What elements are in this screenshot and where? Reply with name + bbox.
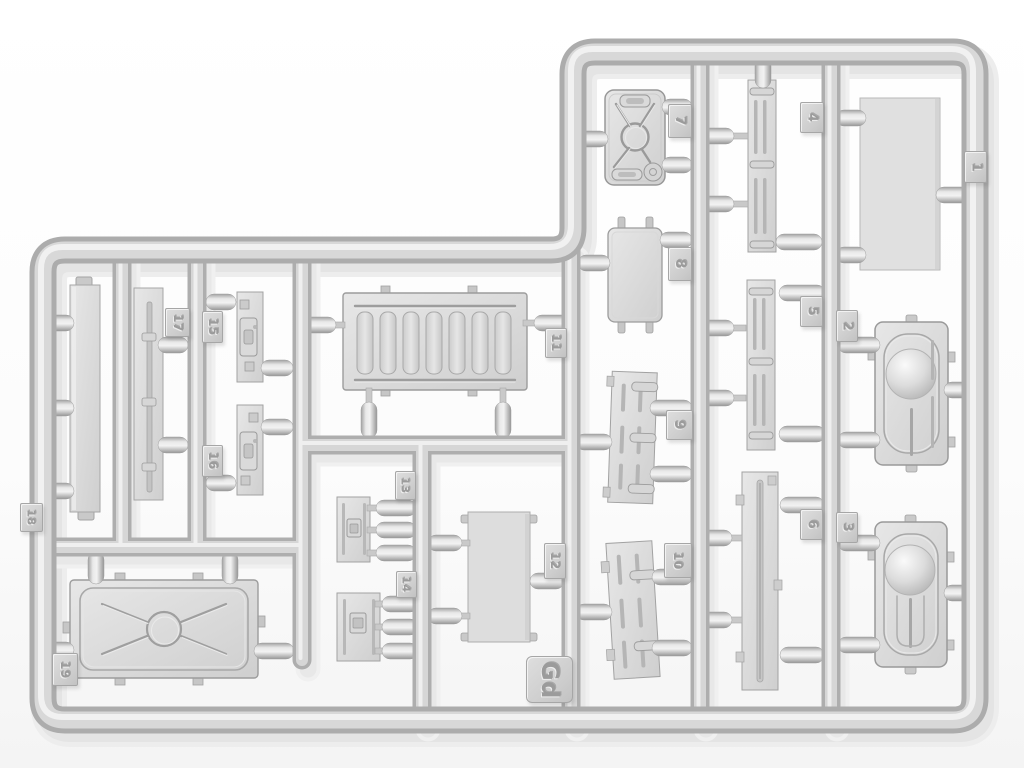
- part-8-box: [608, 217, 662, 333]
- part-tag-1: 1: [964, 151, 987, 183]
- part-tag-14: 14: [396, 571, 417, 598]
- part-tag-4: 4: [800, 102, 824, 133]
- part-tag-5-label: 5: [804, 307, 819, 317]
- part-tag-5: 5: [800, 296, 823, 327]
- part-19-hatch-panel: [63, 573, 265, 685]
- part-13-hatch-plate: [337, 497, 370, 562]
- part-7-jerry-can: [605, 90, 665, 185]
- part-tag-14-label: 14: [400, 576, 413, 592]
- part-tag-17-label: 17: [170, 314, 184, 332]
- part-tag-1-label: 1: [968, 162, 983, 172]
- part-1-flat-sheet: [860, 98, 940, 270]
- part-tag-3: 3: [836, 512, 858, 543]
- part-17-plank: [134, 288, 163, 500]
- part-15-latch-plate: [237, 292, 263, 382]
- part-2-lamp-box: [868, 315, 955, 472]
- part-6-grooved-plank: [736, 472, 782, 690]
- part-tag-9-label: 9: [672, 420, 688, 430]
- part-16-latch-plate: [237, 405, 263, 495]
- part-tag-18-label: 18: [25, 509, 38, 525]
- part-tag-13: 13: [395, 471, 416, 500]
- part-tag-18: 18: [20, 503, 43, 532]
- part-tag-15-label: 15: [205, 318, 219, 336]
- part-tag-6-label: 6: [804, 520, 819, 530]
- model-kit-sprue-photo: 1 2 3 4 5 6 7 8 9 10 11 12 13 14 15 16 1…: [0, 0, 1024, 768]
- part-tag-10-label: 10: [671, 552, 685, 570]
- part-tag-9: 9: [666, 410, 693, 440]
- part-9-slotted-plank: [603, 371, 659, 504]
- part-tag-8-label: 8: [672, 259, 688, 269]
- part-14-hatch-plate: [337, 593, 380, 661]
- part-tag-15: 15: [202, 311, 223, 343]
- part-tag-8: 8: [668, 247, 692, 281]
- part-tag-4-label: 4: [804, 113, 819, 123]
- part-3-lamp-box: [868, 515, 954, 674]
- part-tag-19: 19: [52, 653, 78, 686]
- part-4-rail-plank: [748, 80, 776, 252]
- part-tag-16: 16: [202, 445, 223, 477]
- part-5-rail-plank: [747, 280, 775, 450]
- part-tag-12: 12: [544, 543, 566, 579]
- part-tag-12-label: 12: [548, 552, 562, 570]
- sprue-artwork: [0, 0, 1024, 768]
- part-tag-11-label: 11: [549, 334, 563, 352]
- sprue-code-tag: Gd: [526, 656, 573, 703]
- part-tag-2: 2: [836, 310, 858, 342]
- part-tag-2-label: 2: [839, 321, 854, 331]
- part-tag-11: 11: [545, 328, 567, 358]
- part-tag-7-label: 7: [672, 116, 688, 126]
- part-tag-3-label: 3: [839, 523, 854, 533]
- part-tag-17: 17: [165, 308, 190, 337]
- part-tag-16-label: 16: [205, 452, 219, 470]
- part-tag-6: 6: [800, 509, 823, 540]
- part-12-flat-panel: [461, 512, 537, 642]
- part-18-plank: [70, 277, 100, 520]
- part-tag-10: 10: [664, 543, 692, 578]
- part-tag-7: 7: [668, 104, 692, 138]
- part-tag-19-label: 19: [58, 661, 72, 679]
- part-11-grille: [343, 286, 527, 396]
- part-tag-13-label: 13: [399, 477, 412, 493]
- sprue-code-label: Gd: [535, 661, 563, 699]
